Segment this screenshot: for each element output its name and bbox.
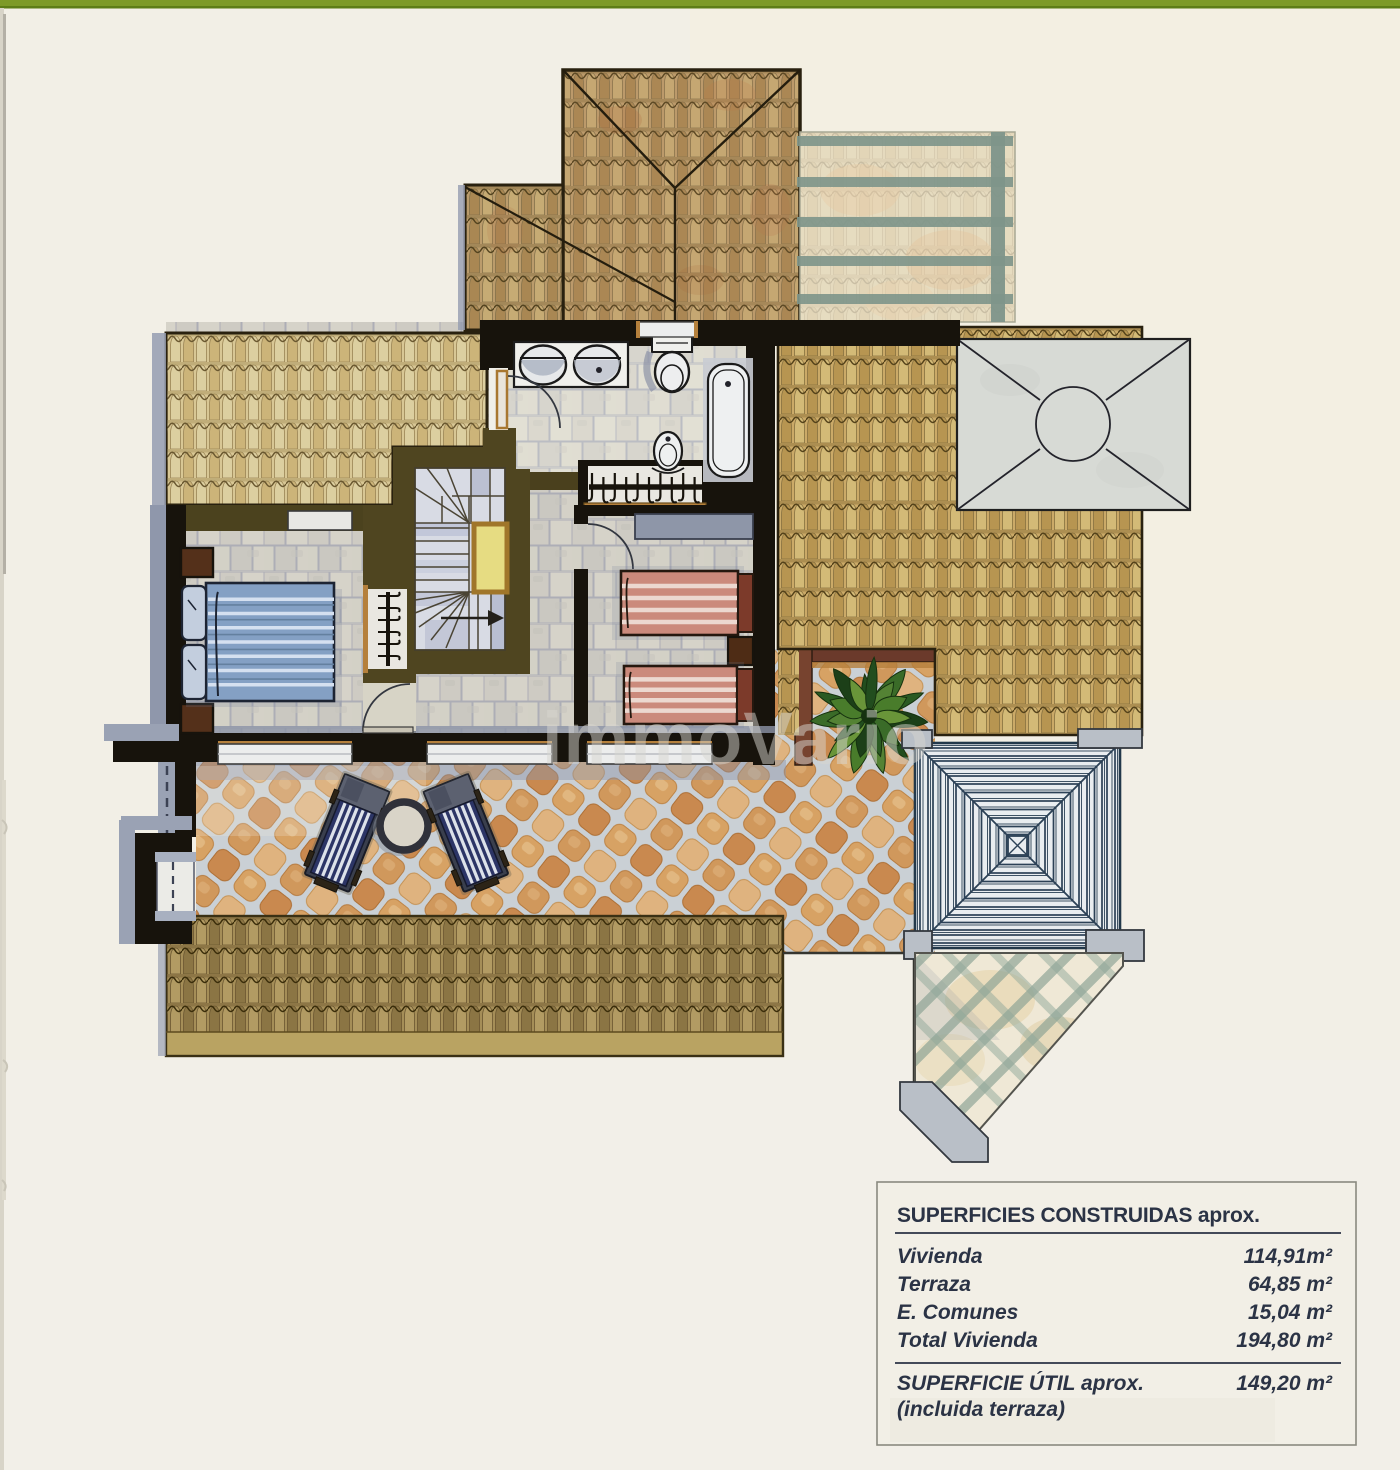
svg-text:Total Vivienda: Total Vivienda [897,1329,1038,1352]
svg-text:15,04 m²: 15,04 m² [1248,1301,1333,1324]
svg-text:Terraza: Terraza [897,1273,971,1296]
svg-text:E. Comunes: E. Comunes [897,1301,1018,1324]
svg-text:SUPERFICIE ÚTIL aprox.: SUPERFICIE ÚTIL aprox. [897,1371,1144,1395]
svg-text:SUPERFICIES CONSTRUIDAS aprox.: SUPERFICIES CONSTRUIDAS aprox. [897,1204,1260,1227]
svg-text:149,20 m²: 149,20 m² [1236,1372,1333,1395]
svg-text:64,85 m²: 64,85 m² [1248,1273,1333,1296]
svg-text:(incluida terraza): (incluida terraza) [897,1398,1065,1421]
svg-text:immoVario: immoVario [542,697,929,780]
svg-text:194,80 m²: 194,80 m² [1236,1329,1333,1352]
svg-text:Vivienda: Vivienda [897,1245,983,1268]
svg-text:114,91m²: 114,91m² [1244,1245,1333,1268]
